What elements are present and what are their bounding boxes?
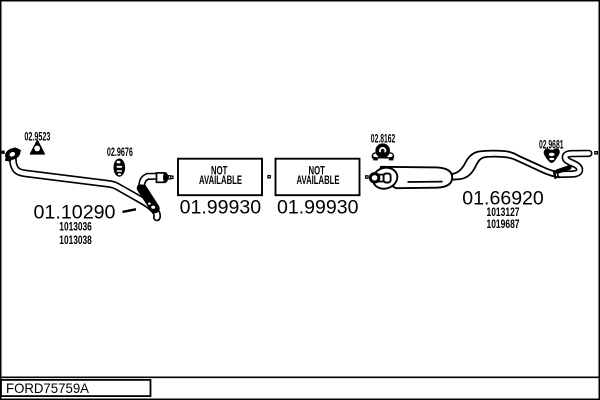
svg-text:FORD75759A: FORD75759A (6, 380, 90, 396)
svg-text:02.8162: 02.8162 (371, 131, 396, 145)
svg-text:1019687: 1019687 (487, 219, 520, 231)
svg-text:01.99930: 01.99930 (277, 197, 359, 219)
svg-text:1013036: 1013036 (59, 222, 92, 234)
svg-text:02.9681: 02.9681 (539, 138, 564, 152)
svg-text:AVAILABLE: AVAILABLE (297, 173, 340, 187)
svg-text:02.9676: 02.9676 (107, 145, 133, 159)
svg-text:01.10290: 01.10290 (34, 201, 116, 223)
svg-text:AVAILABLE: AVAILABLE (199, 173, 242, 187)
svg-text:1013038: 1013038 (59, 235, 92, 247)
svg-text:1013127: 1013127 (487, 207, 520, 219)
svg-text:01.99930: 01.99930 (180, 197, 262, 219)
